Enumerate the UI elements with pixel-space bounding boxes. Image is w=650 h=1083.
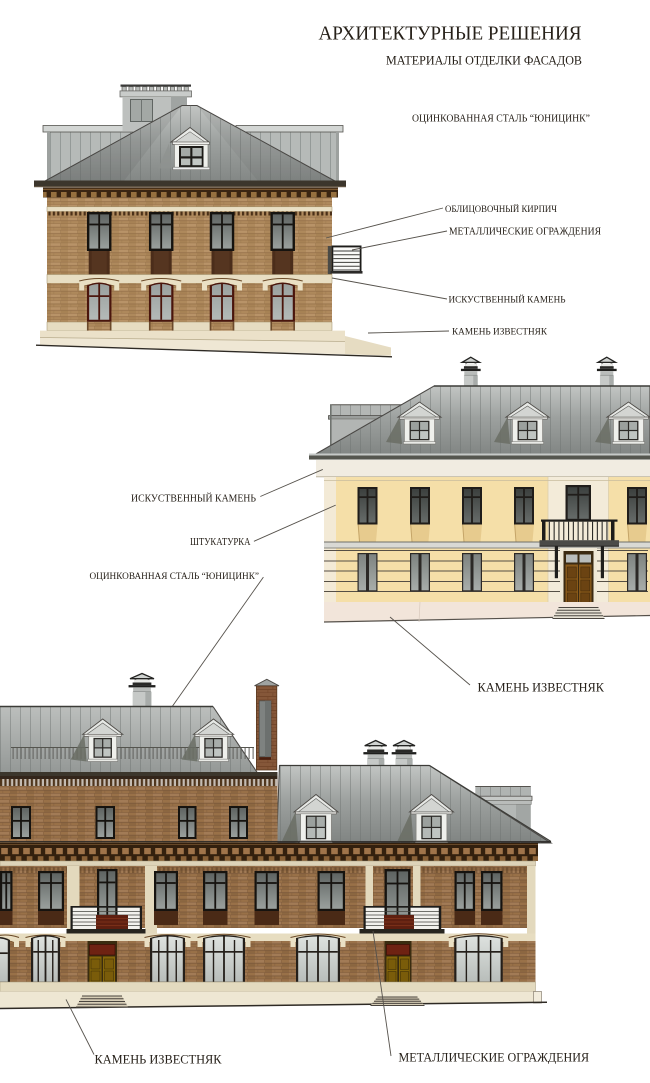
svg-text:КАМЕНЬ ИЗВЕСТНЯК: КАМЕНЬ ИЗВЕСТНЯК (452, 328, 548, 338)
svg-text:ШТУКАТУРКА: ШТУКАТУРКА (190, 537, 251, 548)
svg-text:МАТЕРИАЛЫ ОТДЕЛКИ ФАСАДОВ: МАТЕРИАЛЫ ОТДЕЛКИ ФАСАДОВ (386, 53, 582, 68)
svg-text:КАМЕНЬ ИЗВЕСТНЯК: КАМЕНЬ ИЗВЕСТНЯК (478, 681, 605, 695)
svg-text:КАМЕНЬ ИЗВЕСТНЯК: КАМЕНЬ ИЗВЕСТНЯК (95, 1053, 223, 1067)
svg-text:ОЦИНКОВАННАЯ СТАЛЬ “ЮНИЦИНК”: ОЦИНКОВАННАЯ СТАЛЬ “ЮНИЦИНК” (90, 571, 260, 582)
svg-text:ОЦИНКОВАННАЯ СТАЛЬ “ЮНИЦИНК”: ОЦИНКОВАННАЯ СТАЛЬ “ЮНИЦИНК” (412, 114, 590, 125)
svg-text:ОБЛИЦОВОЧНЫЙ КИРПИЧ: ОБЛИЦОВОЧНЫЙ КИРПИЧ (445, 203, 557, 215)
svg-text:МЕТАЛЛИЧЕСКИЕ ОГРАЖДЕНИЯ: МЕТАЛЛИЧЕСКИЕ ОГРАЖДЕНИЯ (449, 227, 601, 238)
svg-text:ИСКУСТВЕННЫЙ КАМЕНЬ: ИСКУСТВЕННЫЙ КАМЕНЬ (449, 294, 566, 306)
svg-text:АРХИТЕКТУРНЫЕ РЕШЕНИЯ: АРХИТЕКТУРНЫЕ РЕШЕНИЯ (319, 23, 582, 45)
svg-text:ИСКУСТВЕННЫЙ КАМЕНЬ: ИСКУСТВЕННЫЙ КАМЕНЬ (131, 493, 256, 505)
svg-text:МЕТАЛЛИЧЕСКИЕ ОГРАЖДЕНИЯ: МЕТАЛЛИЧЕСКИЕ ОГРАЖДЕНИЯ (399, 1051, 590, 1065)
